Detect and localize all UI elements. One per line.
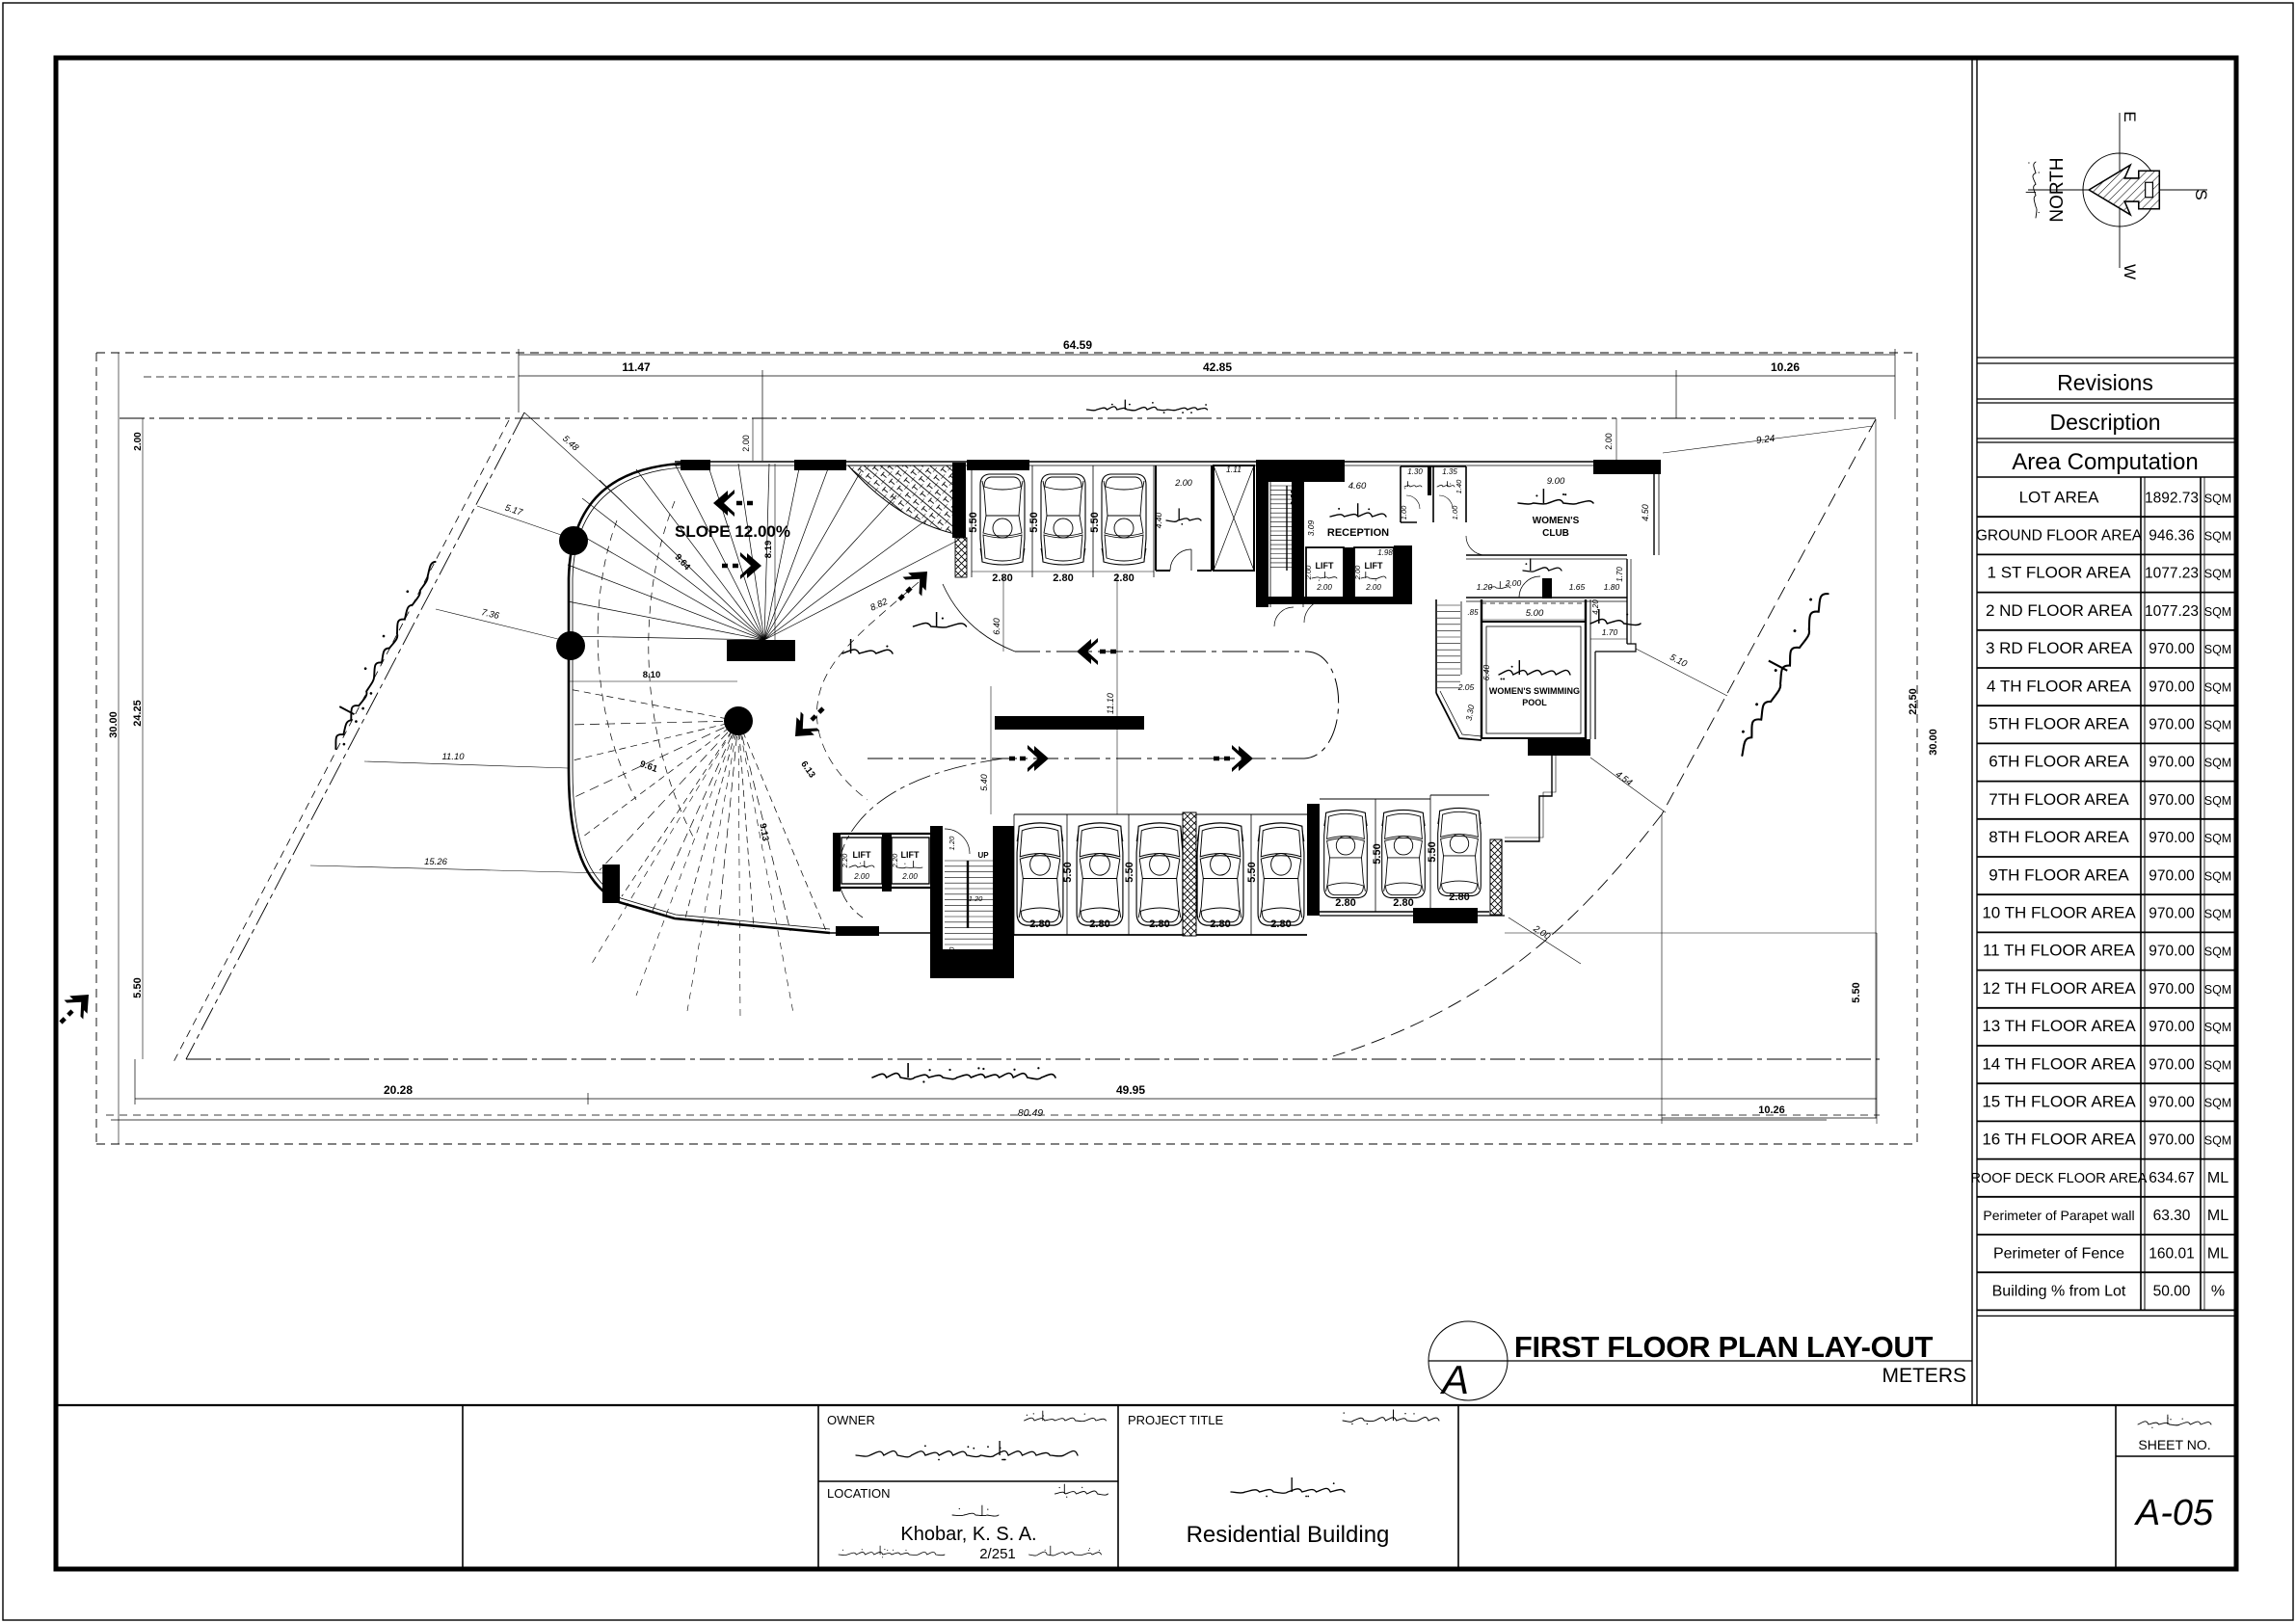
- svg-text:64.59: 64.59: [1063, 338, 1092, 352]
- svg-text:5.50: 5.50: [1372, 843, 1383, 864]
- svg-text:2.80: 2.80: [1149, 918, 1169, 930]
- svg-text:2.80: 2.80: [1053, 572, 1073, 584]
- svg-text:2.20: 2.20: [891, 853, 899, 868]
- svg-text:SQM: SQM: [2204, 869, 2231, 883]
- svg-text:15.26: 15.26: [424, 857, 447, 867]
- svg-text:UP: UP: [977, 851, 989, 860]
- svg-text:SQM: SQM: [2204, 794, 2231, 808]
- svg-text:22.50: 22.50: [1908, 688, 1919, 715]
- svg-text:PROJECT TITLE: PROJECT TITLE: [1128, 1413, 1224, 1427]
- svg-text:970.00: 970.00: [2149, 1132, 2195, 1149]
- svg-text:10.26: 10.26: [1758, 1104, 1785, 1116]
- svg-text:1.65: 1.65: [1569, 582, 1586, 592]
- svg-text:16 TH FLOOR AREA: 16 TH FLOOR AREA: [1982, 1131, 2136, 1149]
- svg-text:GROUND FLOOR AREA: GROUND FLOOR AREA: [1976, 528, 2143, 545]
- svg-text:49.95: 49.95: [1116, 1083, 1145, 1097]
- svg-text:1.80: 1.80: [1604, 582, 1620, 592]
- svg-text:4.40: 4.40: [1154, 512, 1163, 528]
- svg-text:4.20: 4.20: [1591, 599, 1600, 615]
- svg-text:SQM: SQM: [2204, 908, 2231, 921]
- svg-text:63.30: 63.30: [2153, 1208, 2191, 1224]
- svg-text:ML: ML: [2207, 1208, 2229, 1224]
- svg-text:15 TH FLOOR AREA: 15 TH FLOOR AREA: [1982, 1093, 2136, 1111]
- svg-text:CLUB: CLUB: [1542, 528, 1569, 539]
- svg-text:970.00: 970.00: [2149, 1019, 2195, 1035]
- svg-text:50.00: 50.00: [2153, 1284, 2191, 1300]
- svg-text:8.10: 8.10: [643, 670, 661, 680]
- svg-text:SQM: SQM: [2204, 530, 2231, 544]
- svg-text:1.11: 1.11: [1226, 465, 1241, 474]
- svg-text:2.00: 2.00: [1304, 565, 1313, 580]
- svg-text:3.09: 3.09: [1306, 519, 1316, 536]
- svg-text:2.00: 2.00: [1365, 583, 1381, 592]
- svg-text:Residential Building: Residential Building: [1187, 1522, 1390, 1548]
- svg-text:ML: ML: [2207, 1245, 2229, 1262]
- svg-text:SQM: SQM: [2204, 643, 2231, 656]
- svg-text:A-05: A-05: [2134, 1493, 2214, 1533]
- svg-text:970.00: 970.00: [2149, 717, 2195, 733]
- svg-text:1.20: 1.20: [1256, 581, 1266, 598]
- svg-text:1.00: 1.00: [1451, 505, 1459, 519]
- svg-text:5.50: 5.50: [1124, 862, 1135, 882]
- svg-text:2.00: 2.00: [1174, 478, 1192, 488]
- svg-text:4.50: 4.50: [1641, 504, 1650, 521]
- svg-text:2.00: 2.00: [133, 432, 144, 451]
- svg-text:970.00: 970.00: [2149, 944, 2195, 960]
- svg-text:5.50: 5.50: [1028, 512, 1040, 532]
- svg-text:970.00: 970.00: [2149, 906, 2195, 922]
- svg-text:LIFT: LIFT: [1365, 561, 1383, 571]
- svg-text:24.25: 24.25: [132, 700, 144, 727]
- svg-text:SQM: SQM: [2204, 1134, 2231, 1148]
- svg-text:10 TH FLOOR AREA: 10 TH FLOOR AREA: [1982, 904, 2136, 922]
- svg-text:LIFT: LIFT: [853, 850, 871, 860]
- svg-text:LOT AREA: LOT AREA: [2019, 488, 2099, 506]
- svg-text:5.00: 5.00: [1526, 608, 1544, 619]
- svg-text:1.35: 1.35: [1442, 467, 1457, 476]
- svg-text:S: S: [2192, 189, 2210, 200]
- svg-text:SQM: SQM: [2204, 680, 2231, 694]
- svg-text:2.80: 2.80: [1335, 897, 1355, 909]
- svg-text:4 TH FLOOR AREA: 4 TH FLOOR AREA: [1987, 677, 2132, 695]
- svg-text:Area Computation: Area Computation: [2012, 449, 2198, 475]
- svg-text:SQM: SQM: [2204, 983, 2231, 997]
- svg-text:30.00: 30.00: [1928, 729, 1939, 756]
- svg-text:5.50: 5.50: [1062, 862, 1074, 882]
- svg-text:9TH FLOOR AREA: 9TH FLOOR AREA: [1989, 865, 2129, 884]
- svg-text:8.19: 8.19: [763, 541, 774, 559]
- svg-text:6TH FLOOR AREA: 6TH FLOOR AREA: [1989, 753, 2129, 771]
- svg-text:2.00: 2.00: [901, 872, 918, 881]
- svg-text:2.80: 2.80: [1393, 897, 1413, 909]
- svg-text:1.80: 1.80: [948, 946, 956, 961]
- svg-text:970.00: 970.00: [2149, 1056, 2195, 1073]
- svg-text:1077.23: 1077.23: [2145, 566, 2199, 582]
- svg-text:%: %: [2211, 1284, 2225, 1300]
- svg-text:2.80: 2.80: [1113, 572, 1134, 584]
- svg-text:946.36: 946.36: [2149, 528, 2194, 545]
- svg-text:3 RD FLOOR AREA: 3 RD FLOOR AREA: [1986, 639, 2133, 657]
- svg-text:.85: .85: [1467, 608, 1479, 617]
- svg-text:2.00: 2.00: [1604, 433, 1614, 450]
- svg-text:5.50: 5.50: [1246, 862, 1258, 882]
- svg-text:970.00: 970.00: [2149, 792, 2195, 809]
- svg-text:2.00: 2.00: [1316, 583, 1332, 592]
- svg-text:SLOPE 12.00%: SLOPE 12.00%: [675, 522, 790, 541]
- svg-text:2.80: 2.80: [1089, 918, 1109, 930]
- svg-text:2.00: 2.00: [1353, 565, 1362, 580]
- svg-text:1.20: 1.20: [969, 894, 983, 903]
- svg-text:LIFT: LIFT: [901, 850, 920, 860]
- svg-text:OWNER: OWNER: [827, 1413, 875, 1427]
- svg-text:FIRST FLOOR PLAN LAY-OUT: FIRST FLOOR PLAN LAY-OUT: [1514, 1330, 1934, 1364]
- svg-text:Khobar, K. S. A.: Khobar, K. S. A.: [900, 1524, 1036, 1545]
- svg-text:Perimeter of Parapet wall: Perimeter of Parapet wall: [1983, 1208, 2134, 1223]
- svg-text:1892.73: 1892.73: [2145, 490, 2199, 506]
- svg-text:30.00: 30.00: [108, 711, 120, 738]
- svg-text:5.50: 5.50: [1089, 512, 1101, 532]
- svg-text:2.20: 2.20: [841, 853, 849, 868]
- svg-text:SQM: SQM: [2204, 1058, 2231, 1072]
- svg-text:11.47: 11.47: [622, 360, 651, 374]
- svg-text:4.60: 4.60: [1348, 481, 1367, 492]
- svg-text:ML: ML: [2207, 1170, 2229, 1186]
- svg-text:2.80: 2.80: [992, 572, 1012, 584]
- svg-text:1.20: 1.20: [1477, 582, 1493, 592]
- svg-text:Description: Description: [2049, 410, 2160, 435]
- svg-text:ROOF DECK FLOOR AREA: ROOF DECK FLOOR AREA: [1971, 1171, 2148, 1186]
- svg-text:5.50: 5.50: [968, 512, 979, 532]
- svg-text:11 TH FLOOR AREA: 11 TH FLOOR AREA: [1983, 942, 2136, 960]
- svg-text:1.00: 1.00: [1400, 505, 1408, 519]
- svg-text:14 TH FLOOR AREA: 14 TH FLOOR AREA: [1982, 1054, 2136, 1073]
- svg-text:970.00: 970.00: [2149, 1095, 2195, 1111]
- svg-text:80.49: 80.49: [1018, 1107, 1043, 1119]
- svg-text:9.00: 9.00: [1547, 476, 1565, 487]
- svg-text:NORTH: NORTH: [2047, 157, 2068, 222]
- svg-text:1077.23: 1077.23: [2145, 603, 2199, 620]
- svg-text:2.05: 2.05: [1457, 682, 1475, 692]
- svg-text:12 TH FLOOR AREA: 12 TH FLOOR AREA: [1982, 979, 2136, 998]
- svg-text:2.80: 2.80: [1270, 918, 1291, 930]
- svg-text:13 TH FLOOR AREA: 13 TH FLOOR AREA: [1982, 1017, 2136, 1035]
- svg-text:WOMEN'S: WOMEN'S: [1533, 516, 1580, 526]
- svg-text:970.00: 970.00: [2149, 867, 2195, 884]
- svg-text:1.70: 1.70: [1602, 627, 1618, 637]
- svg-text:970.00: 970.00: [2149, 981, 2195, 998]
- svg-text:8TH FLOOR AREA: 8TH FLOOR AREA: [1989, 828, 2129, 846]
- svg-text:LOCATION: LOCATION: [827, 1486, 891, 1501]
- svg-text:SQM: SQM: [2204, 492, 2231, 505]
- svg-text:2.80: 2.80: [1449, 891, 1469, 903]
- svg-text:7TH FLOOR AREA: 7TH FLOOR AREA: [1989, 790, 2129, 809]
- svg-text:SQM: SQM: [2204, 1097, 2231, 1110]
- svg-text:SQM: SQM: [2204, 719, 2231, 732]
- svg-text:METERS: METERS: [1882, 1365, 1966, 1387]
- svg-text:Building % from Lot: Building % from Lot: [1992, 1284, 2126, 1300]
- svg-text:970.00: 970.00: [2149, 755, 2195, 771]
- svg-text:634.67: 634.67: [2149, 1170, 2194, 1186]
- svg-text:SQM: SQM: [2204, 757, 2231, 770]
- svg-text:6.40: 6.40: [992, 618, 1001, 635]
- svg-text:SQM: SQM: [2204, 1021, 2231, 1034]
- svg-text:2.00: 2.00: [853, 872, 869, 881]
- svg-text:2 ND FLOOR AREA: 2 ND FLOOR AREA: [1986, 601, 2133, 620]
- svg-text:5.50: 5.50: [132, 977, 144, 998]
- svg-text:RECEPTION: RECEPTION: [1327, 527, 1389, 539]
- svg-text:SQM: SQM: [2204, 568, 2231, 581]
- svg-text:1.98: 1.98: [1377, 548, 1393, 557]
- svg-text:SQM: SQM: [2204, 605, 2231, 619]
- svg-text:970.00: 970.00: [2149, 830, 2195, 846]
- svg-text:160.01: 160.01: [2149, 1245, 2194, 1262]
- svg-text:1.70: 1.70: [1615, 567, 1624, 582]
- svg-text:1.30: 1.30: [1407, 467, 1423, 476]
- svg-text:SHEET NO.: SHEET NO.: [2138, 1437, 2210, 1452]
- svg-text:10.26: 10.26: [1771, 360, 1800, 374]
- svg-text:5.50: 5.50: [1427, 841, 1438, 862]
- svg-text:A: A: [1439, 1357, 1469, 1402]
- svg-text:2.00: 2.00: [741, 435, 751, 452]
- svg-text:1.40: 1.40: [1455, 479, 1463, 493]
- svg-text:2/251: 2/251: [979, 1546, 1016, 1562]
- svg-text:Revisions: Revisions: [2057, 370, 2153, 395]
- svg-text:42.85: 42.85: [1203, 360, 1232, 374]
- svg-text:20.28: 20.28: [384, 1083, 413, 1097]
- svg-text:5TH FLOOR AREA: 5TH FLOOR AREA: [1989, 715, 2129, 733]
- svg-text:POOL: POOL: [1522, 698, 1547, 707]
- svg-text:W: W: [2121, 264, 2139, 279]
- svg-text:2.80: 2.80: [1210, 918, 1230, 930]
- svg-text:2.80: 2.80: [1029, 918, 1050, 930]
- svg-text:WOMEN'S SWIMMING: WOMEN'S SWIMMING: [1489, 686, 1580, 696]
- svg-text:970.00: 970.00: [2149, 641, 2195, 657]
- svg-text:11.10: 11.10: [441, 752, 465, 762]
- svg-text:2.00: 2.00: [1505, 578, 1522, 588]
- svg-text:Perimeter of Fence: Perimeter of Fence: [1993, 1245, 2124, 1262]
- svg-text:11.10: 11.10: [1106, 693, 1115, 714]
- svg-text:5.50: 5.50: [1851, 982, 1862, 1002]
- svg-text:E: E: [2121, 111, 2139, 121]
- svg-text:970.00: 970.00: [2149, 678, 2195, 695]
- svg-text:1 ST FLOOR AREA: 1 ST FLOOR AREA: [1988, 564, 2132, 582]
- svg-text:SQM: SQM: [2204, 832, 2231, 845]
- svg-text:SQM: SQM: [2204, 945, 2231, 959]
- svg-text:LIFT: LIFT: [1316, 561, 1334, 571]
- svg-text:1.20: 1.20: [948, 836, 956, 850]
- svg-text:5.40: 5.40: [979, 774, 989, 791]
